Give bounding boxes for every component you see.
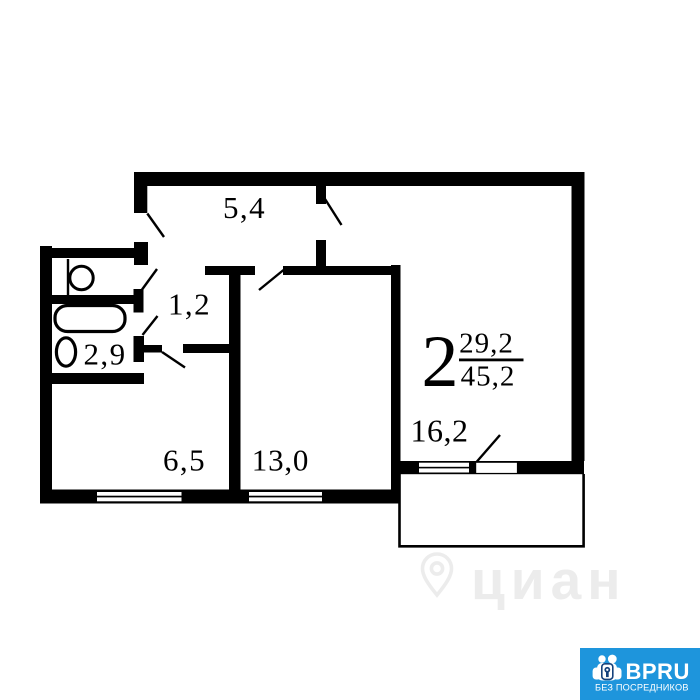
svg-text:2: 2 — [422, 321, 459, 403]
svg-text:BPRU: BPRU — [626, 659, 690, 684]
svg-text:16,2: 16,2 — [411, 413, 469, 449]
svg-text:БЕЗ ПОСРЕДНИКОВ: БЕЗ ПОСРЕДНИКОВ — [595, 683, 689, 693]
svg-text:2,9: 2,9 — [84, 337, 127, 372]
svg-text:45,2: 45,2 — [461, 361, 516, 393]
svg-text:5,4: 5,4 — [223, 190, 266, 225]
svg-text:13,0: 13,0 — [252, 443, 309, 478]
svg-text:6,5: 6,5 — [163, 443, 206, 478]
svg-text:29,2: 29,2 — [459, 328, 514, 360]
svg-text:циан: циан — [471, 549, 626, 611]
svg-text:1,2: 1,2 — [168, 287, 211, 322]
